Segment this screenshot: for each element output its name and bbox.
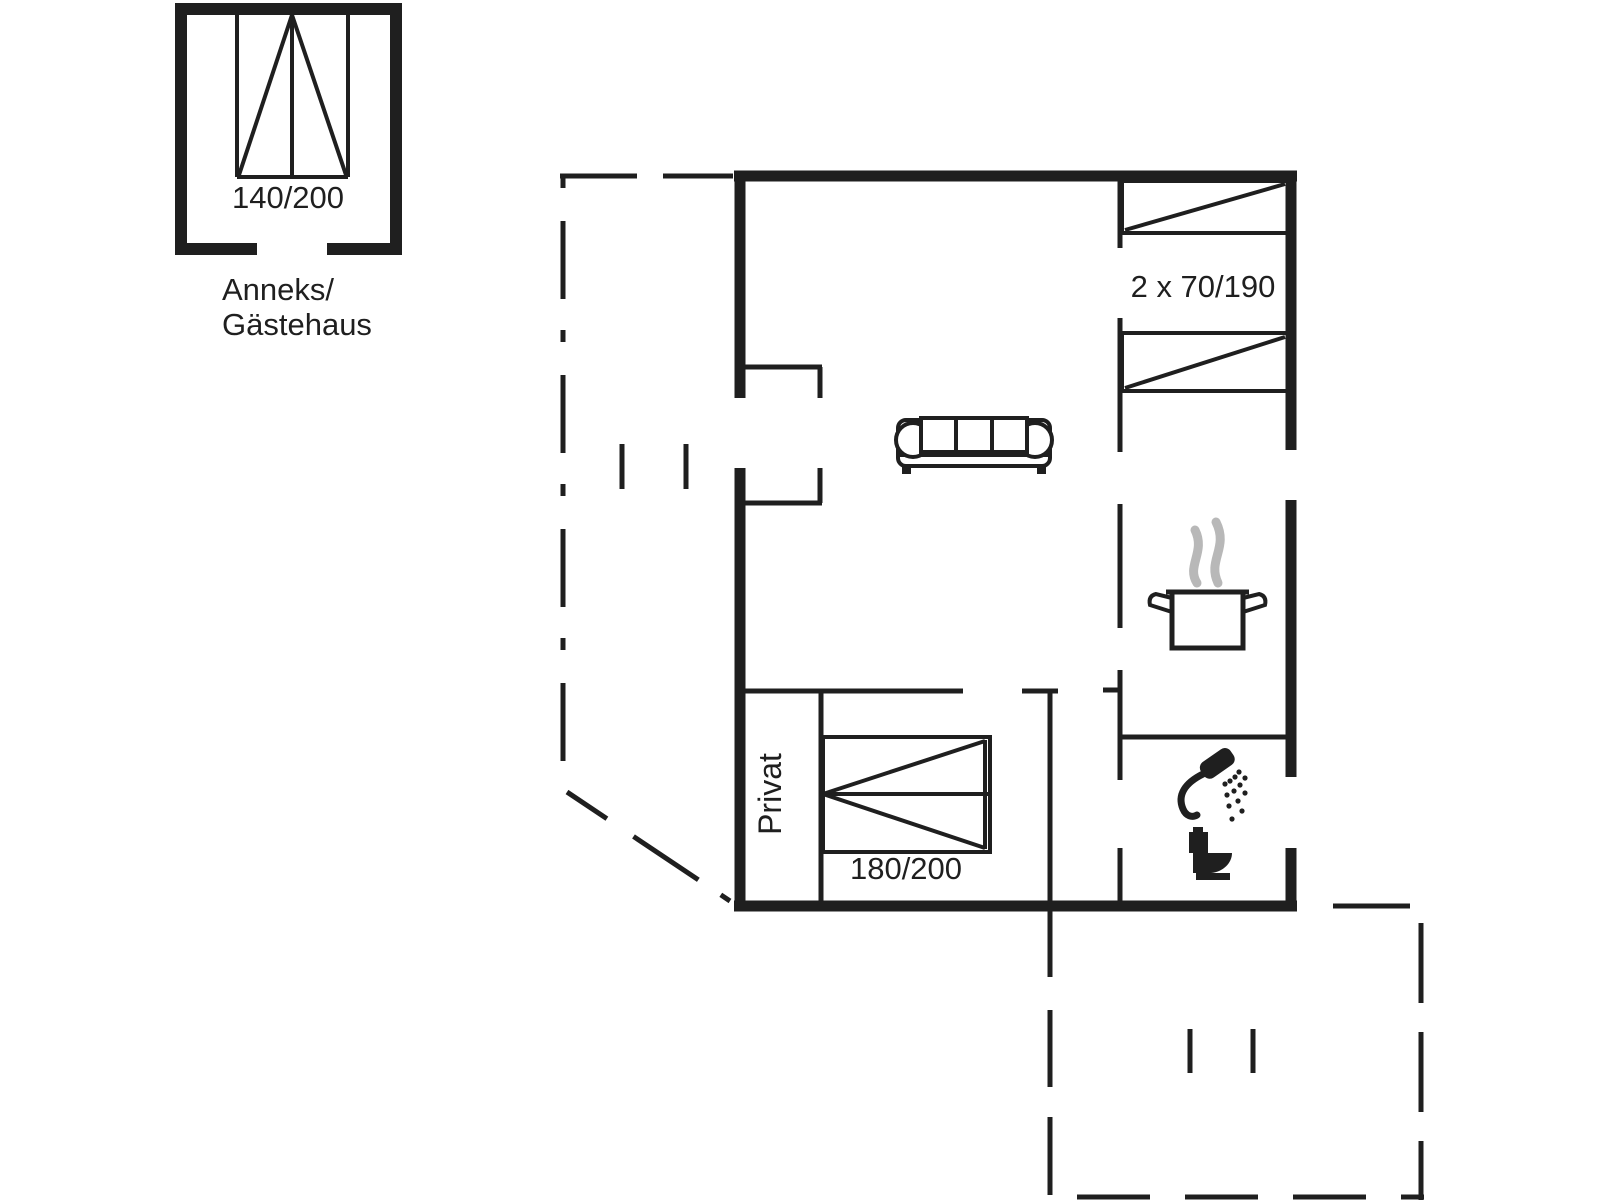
single-bed-icon-bottom xyxy=(1122,333,1288,391)
steam-icon xyxy=(1194,522,1221,583)
double-bed-size-label: 180/200 xyxy=(850,851,962,886)
left-terrace-outline xyxy=(560,176,733,901)
annex-bed-size-label: 140/200 xyxy=(232,180,344,215)
main-house xyxy=(560,171,1424,1200)
annex-name-line2: Gästehaus xyxy=(222,307,372,342)
shower-icon xyxy=(1181,745,1248,821)
annex-name-line1: Anneks/ xyxy=(222,272,334,307)
terrace-edge-diagonal xyxy=(567,792,730,901)
annex-walls xyxy=(175,3,402,255)
shower-spray-dots xyxy=(1222,769,1247,821)
bunk-bed-size-label: 2 x 70/190 xyxy=(1131,269,1276,304)
private-room-label: Privat xyxy=(752,753,788,835)
floor-plan: 140/200 Anneks/ Gästehaus xyxy=(0,0,1600,1200)
double-bed-icon xyxy=(823,737,990,852)
single-bed-icon-top xyxy=(1122,181,1288,233)
right-terrace-outline xyxy=(1050,906,1424,1200)
annex-building xyxy=(175,3,402,255)
toilet-icon xyxy=(1189,827,1232,880)
sofa-icon xyxy=(896,418,1052,474)
annex-double-bed-icon xyxy=(237,15,348,177)
cooking-pot-icon xyxy=(1150,522,1266,648)
